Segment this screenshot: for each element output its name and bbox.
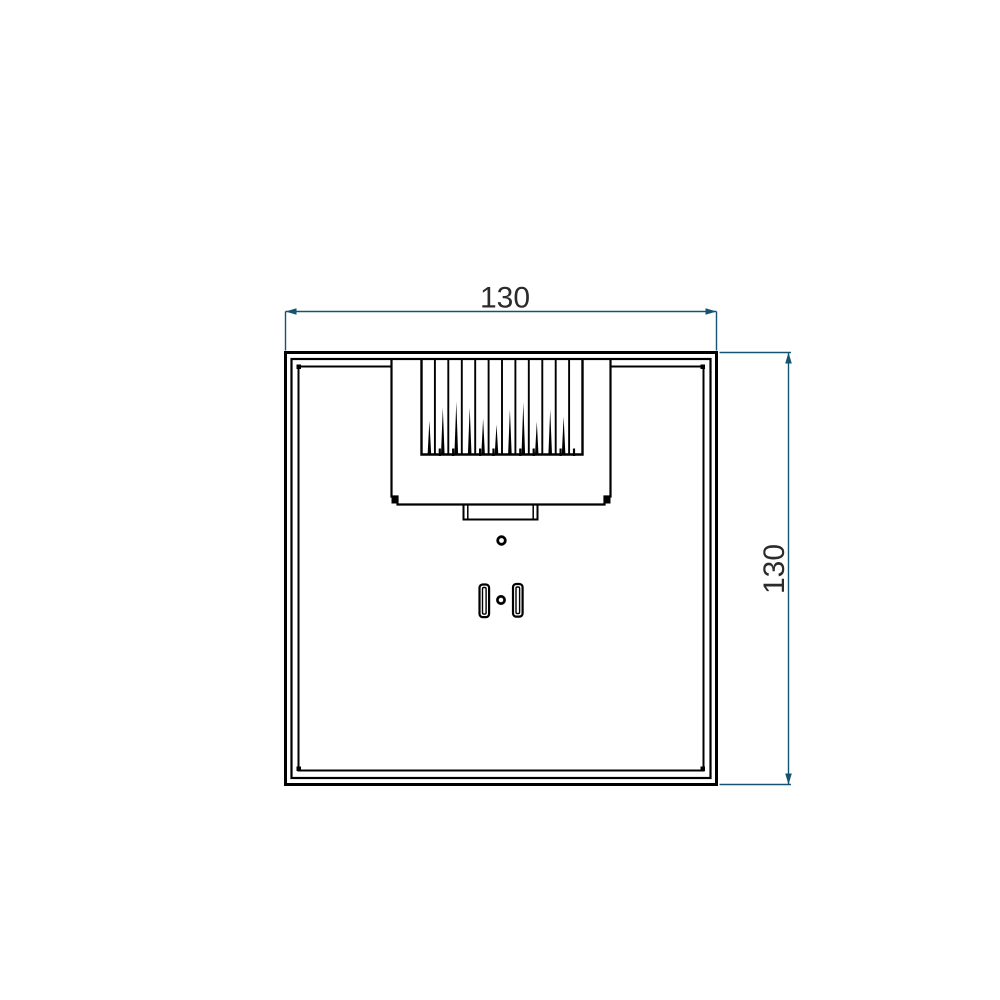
fin-wedge <box>481 419 485 455</box>
fin-wedge <box>468 408 472 455</box>
slot-left-outer <box>480 585 490 618</box>
fin-tick <box>492 449 494 457</box>
outer-profile <box>286 353 717 785</box>
support-housing <box>392 360 611 505</box>
corner-notch <box>297 767 302 772</box>
part-top-view <box>286 353 717 785</box>
fin-tick <box>439 449 441 457</box>
fin-wedge <box>562 417 566 455</box>
pilot-hole-center <box>497 596 504 603</box>
width-dimension: 130 <box>286 282 717 351</box>
heatsink-assembly <box>392 360 611 505</box>
fin-wedge <box>495 425 499 455</box>
width-dim-value: 130 <box>480 282 530 315</box>
fin-wedge <box>522 403 526 455</box>
slot-right-inner <box>516 587 520 614</box>
drawing-canvas: 130 130 <box>0 0 1000 1000</box>
fin-wedge <box>548 410 552 455</box>
height-arrow-top <box>785 353 792 364</box>
width-arrow-right <box>706 308 717 314</box>
corner-notch <box>701 365 706 370</box>
cad-drawing: 130 130 <box>0 0 1000 1000</box>
width-arrow-left <box>286 308 297 314</box>
corner-notch <box>701 767 706 772</box>
inner-frame-line <box>299 367 704 771</box>
pilot-hole-upper <box>498 537 506 545</box>
height-arrow-bottom <box>785 774 792 785</box>
fin-tick <box>573 449 575 457</box>
slot-left-inner <box>483 588 487 615</box>
housing-notch <box>606 497 611 504</box>
fin-wedge <box>535 422 539 455</box>
fin-tick <box>479 449 481 457</box>
fin-tick <box>452 449 454 457</box>
slot-right-outer <box>513 584 523 617</box>
fin-tick <box>519 449 521 457</box>
housing-notch <box>392 497 397 504</box>
fin-tick <box>533 449 535 457</box>
height-dim-value: 130 <box>758 544 791 594</box>
fin-wedge <box>508 410 512 455</box>
wall-line <box>292 359 711 778</box>
mounting-slots <box>480 584 523 617</box>
fin-wedge <box>428 421 432 455</box>
heatsink-fins <box>428 360 576 456</box>
corner-notch <box>297 365 302 370</box>
tab-outline <box>464 505 538 520</box>
fin-tick <box>560 449 562 457</box>
fin-wedge <box>441 408 445 455</box>
fin-wedge <box>454 402 458 455</box>
height-dimension: 130 <box>720 353 792 785</box>
connector-tab <box>464 505 538 520</box>
